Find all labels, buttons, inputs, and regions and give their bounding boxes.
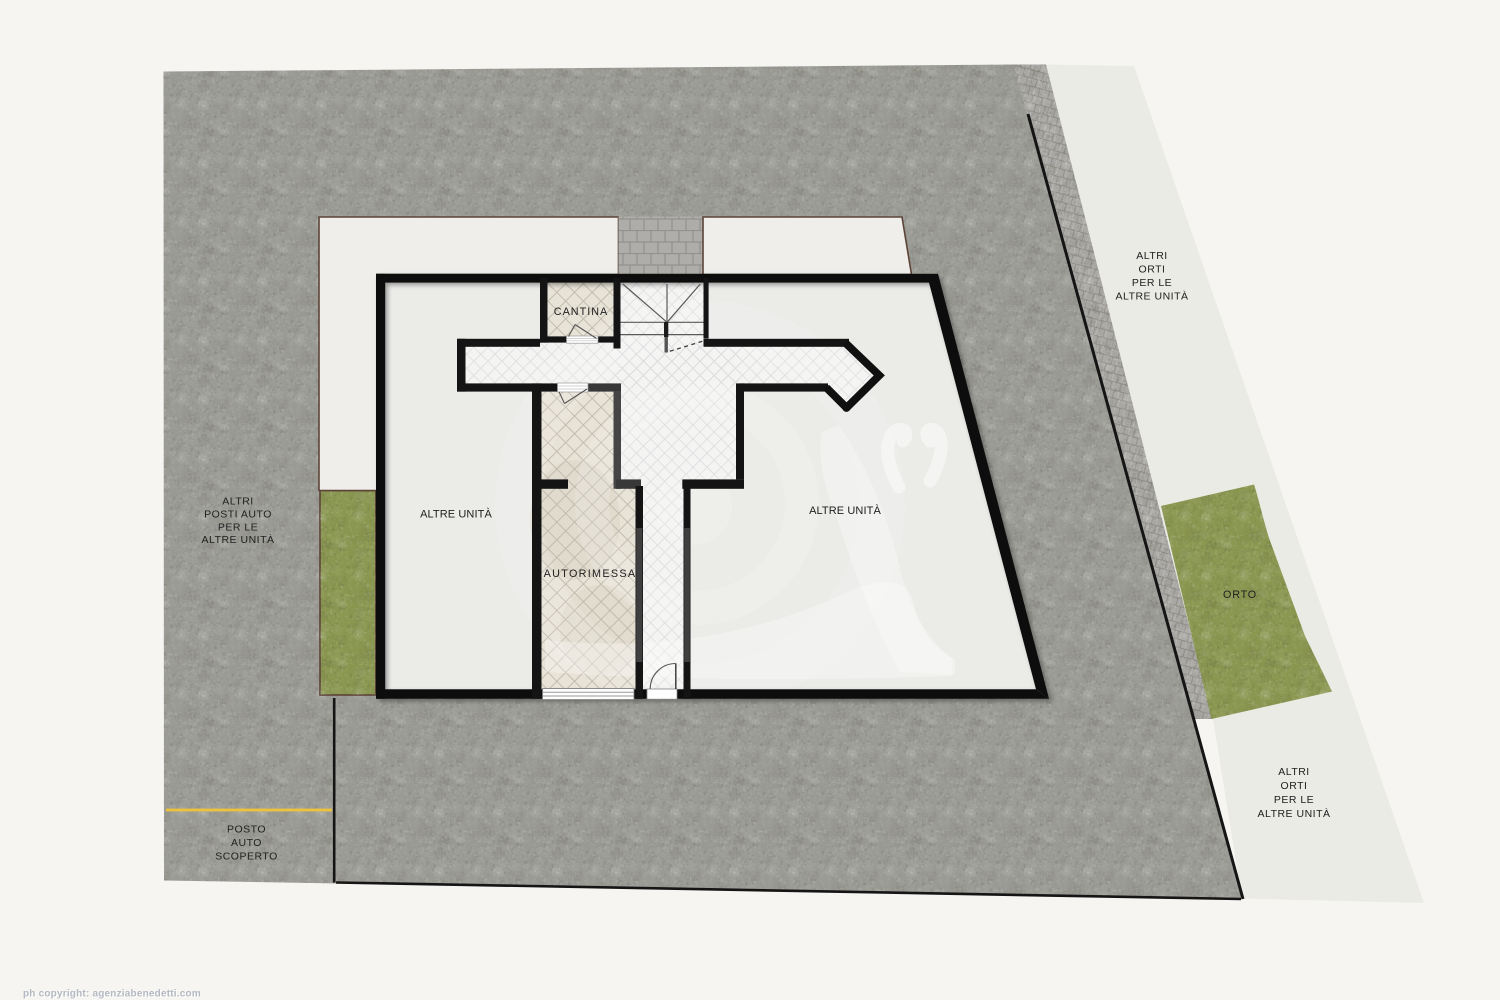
svg-text:ALTRE UNITÀ: ALTRE UNITÀ bbox=[420, 508, 492, 521]
svg-text:ALTRI: ALTRI bbox=[1136, 250, 1167, 262]
svg-text:AUTO: AUTO bbox=[231, 837, 262, 849]
svg-text:ph copyright: agenziabenedetti: ph copyright: agenziabenedetti.com bbox=[23, 989, 201, 1000]
svg-text:ALTRI: ALTRI bbox=[1278, 766, 1309, 778]
svg-text:PER LE: PER LE bbox=[1132, 277, 1172, 289]
svg-text:SCOPERTO: SCOPERTO bbox=[215, 851, 278, 863]
svg-text:POSTO: POSTO bbox=[227, 824, 266, 836]
svg-text:ORTI: ORTI bbox=[1139, 263, 1166, 275]
svg-text:ALTRE UNITÀ: ALTRE UNITÀ bbox=[1116, 289, 1189, 302]
svg-text:ALTRI: ALTRI bbox=[222, 496, 253, 508]
svg-text:ALTRE UNITÀ: ALTRE UNITÀ bbox=[809, 504, 881, 517]
svg-text:ORTI: ORTI bbox=[1281, 780, 1308, 792]
svg-text:CANTINA: CANTINA bbox=[554, 306, 608, 318]
svg-text:ORTO: ORTO bbox=[1223, 589, 1257, 601]
svg-text:ALTRE UNITÀ: ALTRE UNITÀ bbox=[1258, 807, 1331, 820]
svg-text:POSTI AUTO: POSTI AUTO bbox=[204, 508, 272, 520]
svg-text:PER LE: PER LE bbox=[218, 521, 258, 533]
svg-text:PER LE: PER LE bbox=[1274, 794, 1314, 806]
svg-text:ALTRE UNITÀ: ALTRE UNITÀ bbox=[202, 533, 275, 546]
svg-text:AUTORIMESSA: AUTORIMESSA bbox=[544, 568, 637, 580]
